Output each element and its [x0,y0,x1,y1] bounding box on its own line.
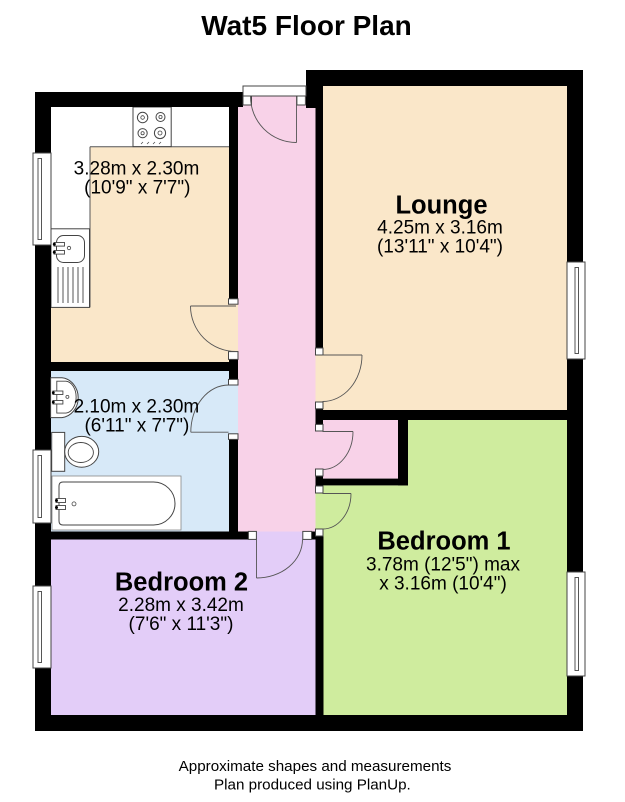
svg-text:(10'9" x 7'7"): (10'9" x 7'7") [84,177,190,198]
svg-text:2.10m x 2.30m: 2.10m x 2.30m [74,396,200,417]
svg-text:3.78m (12'5") max: 3.78m (12'5") max [366,555,520,576]
svg-text:2.28m x 3.42m: 2.28m x 3.42m [118,595,244,616]
svg-text:Approximate shapes and measure: Approximate shapes and measurements [179,758,452,775]
svg-text:x 3.16m (10'4"): x 3.16m (10'4") [379,574,507,595]
svg-text:(7'6" x 11'3"): (7'6" x 11'3") [129,614,234,635]
svg-text:(6'11" x 7'7"): (6'11" x 7'7") [84,415,189,436]
svg-text:(13'11" x 10'4"): (13'11" x 10'4") [377,237,503,258]
svg-text:Bedroom 1: Bedroom 1 [377,528,510,556]
svg-text:Wat5 Floor Plan: Wat5 Floor Plan [201,10,412,41]
svg-text:Bedroom 2: Bedroom 2 [115,569,248,597]
svg-text:3.28m x 2.30m: 3.28m x 2.30m [74,158,200,179]
svg-text:Plan produced using PlanUp.: Plan produced using PlanUp. [214,777,411,794]
svg-text:Lounge: Lounge [395,192,487,220]
svg-text:4.25m x 3.16m: 4.25m x 3.16m [377,218,503,239]
